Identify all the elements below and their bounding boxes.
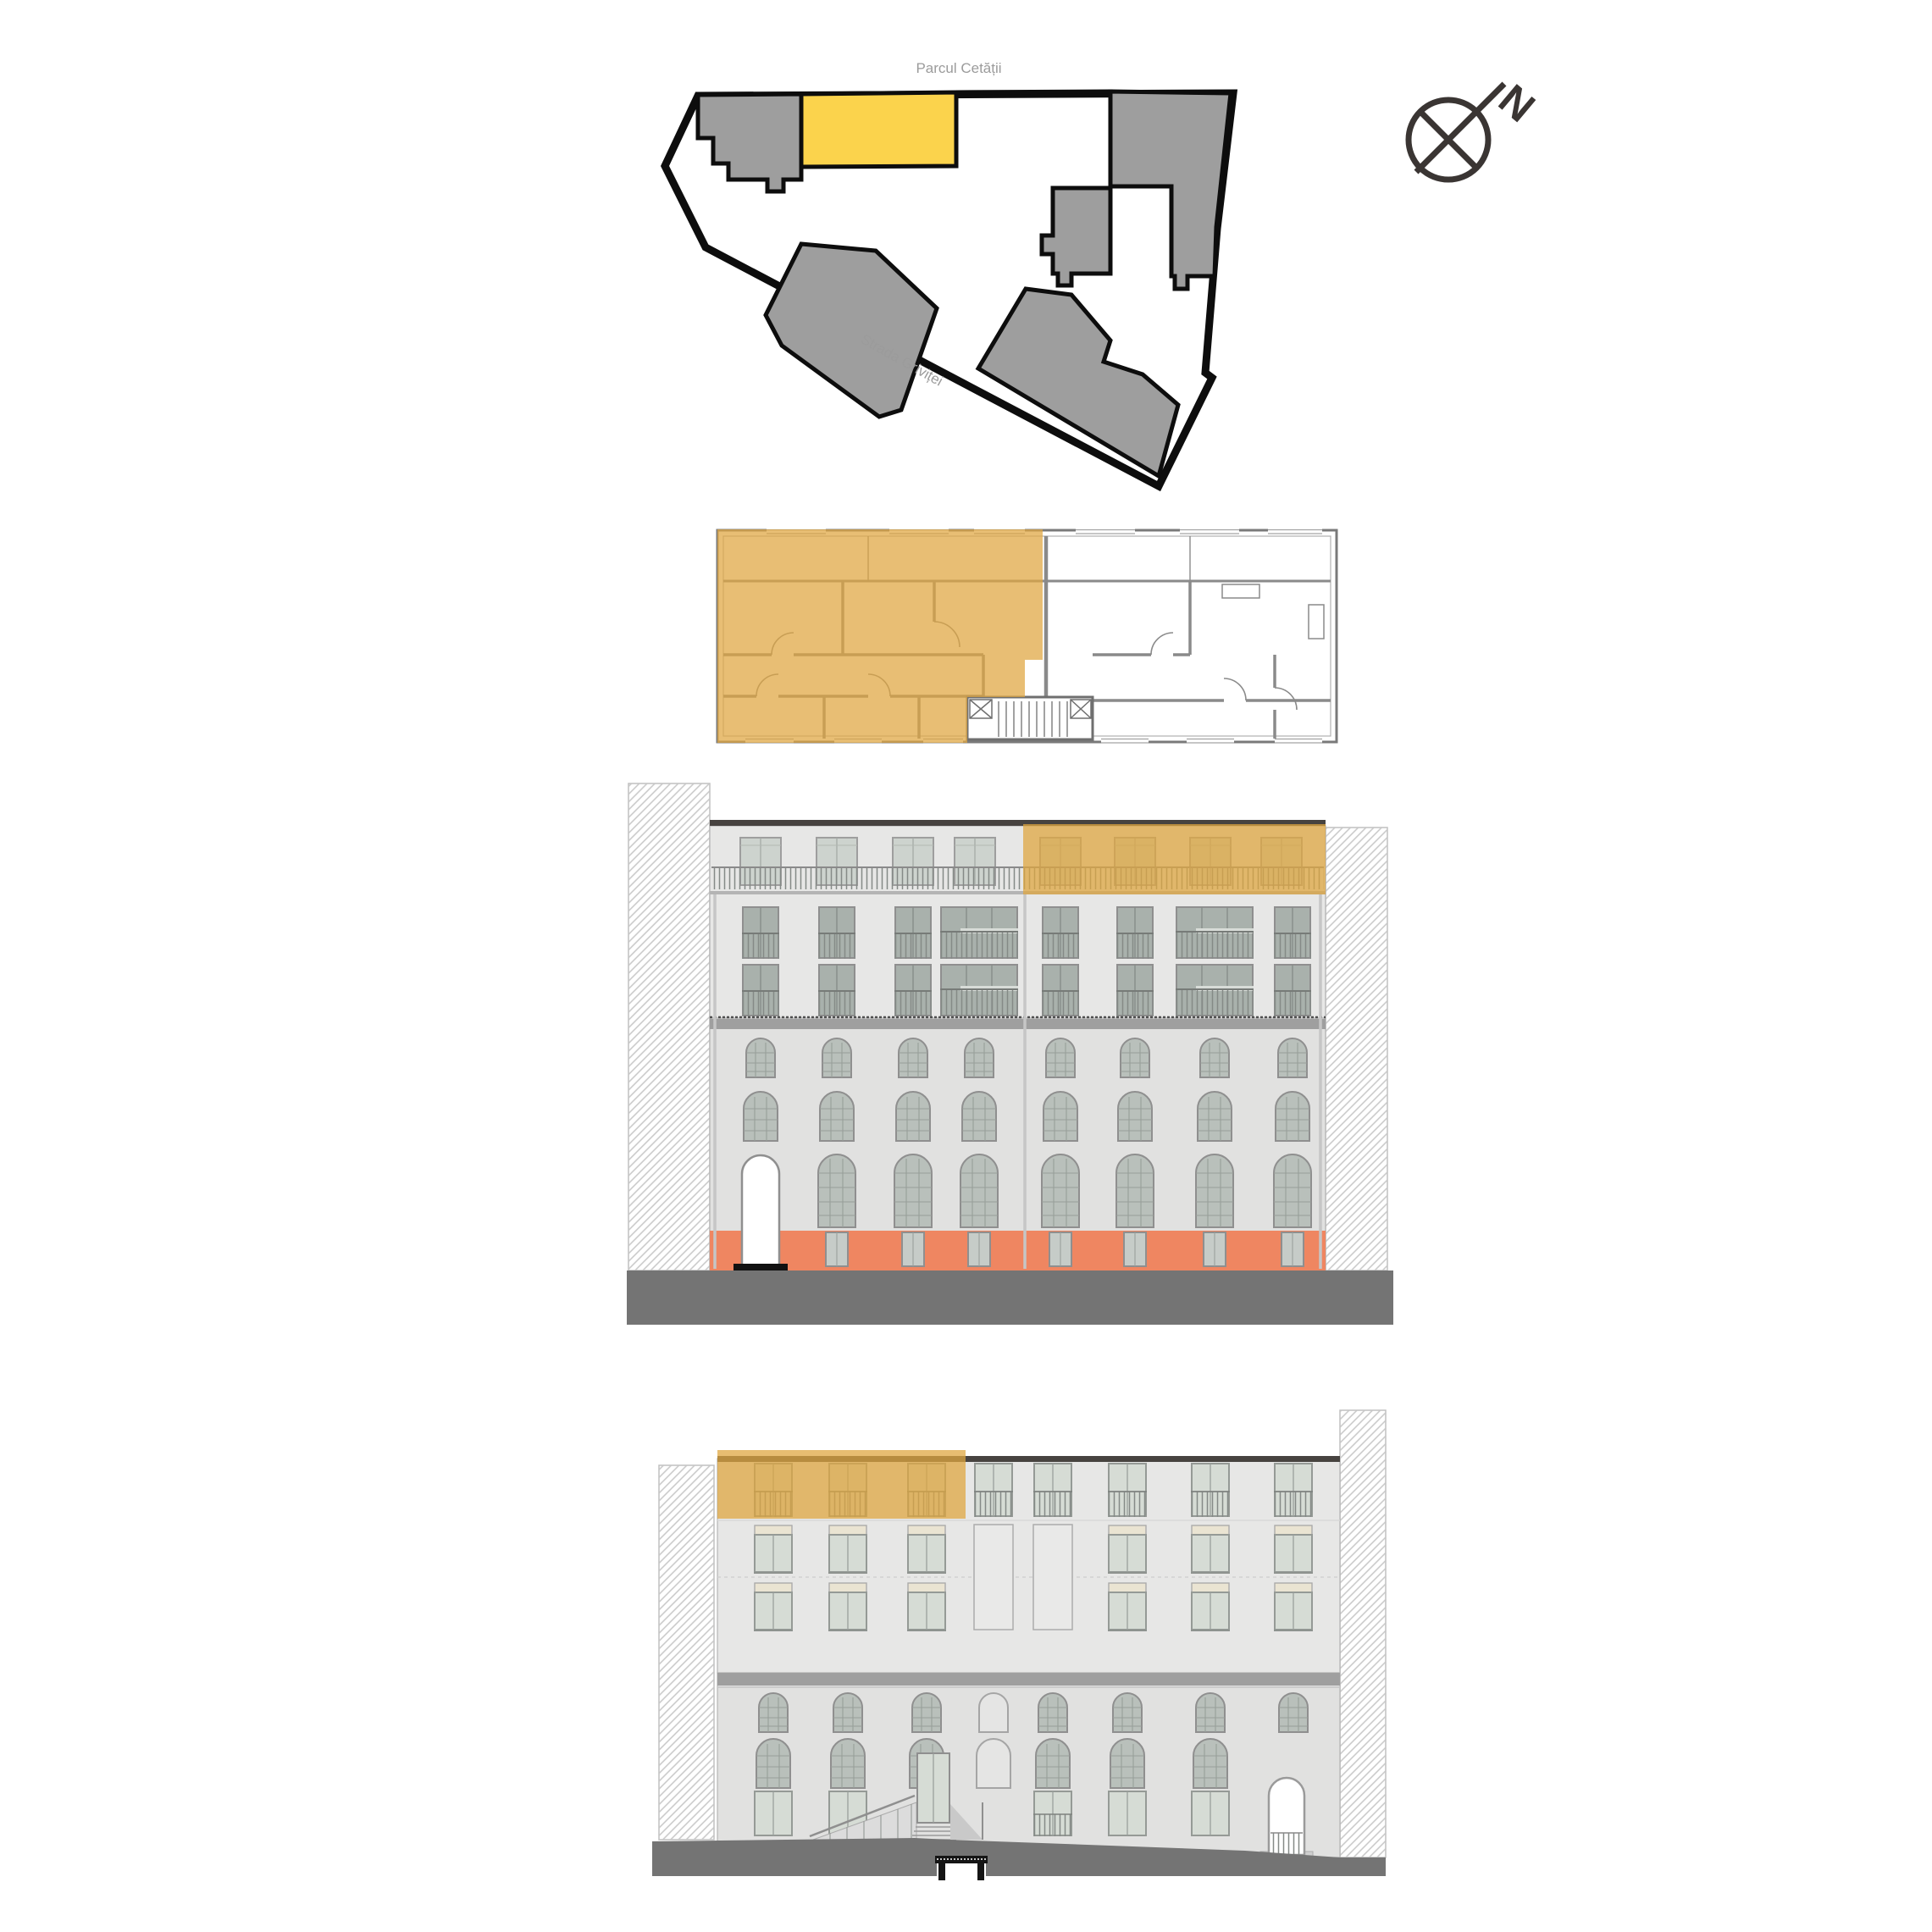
- elevation-rear-figure: [652, 1398, 1398, 1931]
- entry-door-arched: [733, 1155, 788, 1283]
- site-plan-svg: Parcul Cetății Strada Griviței: [652, 49, 1241, 498]
- architectural-drawing-sheet: Parcul Cetății Strada Griviței N: [0, 0, 1932, 1932]
- elevation-front-svg: [627, 779, 1393, 1330]
- building-gray-north-middle-lower: [1042, 188, 1110, 285]
- cornice-band: [710, 1017, 1326, 1029]
- elevation-front-figure: [627, 779, 1393, 1330]
- floor-plan-svg: [716, 527, 1338, 747]
- north-arrow: N: [1379, 47, 1557, 212]
- terrain-strip: [710, 1231, 1326, 1270]
- ground-mass: [627, 1270, 1393, 1325]
- facade-lower: [717, 1673, 1340, 1857]
- elevation-front-overlay[interactable]: [1023, 824, 1326, 894]
- north-label: N: [1490, 75, 1544, 131]
- building-highlighted-site[interactable]: [801, 92, 956, 167]
- elevation-rear-overlay[interactable]: [717, 1450, 966, 1519]
- neighbor-hatch-left: [659, 1465, 714, 1840]
- park-label: Parcul Cetății: [916, 60, 1001, 76]
- neighbor-hatch-left: [628, 783, 710, 1270]
- bench: [935, 1856, 988, 1880]
- floor-plan-figure: [716, 527, 1338, 747]
- neighbor-hatch-right: [1340, 1410, 1386, 1857]
- elevation-rear-svg: [652, 1398, 1398, 1931]
- compass-glyph: [1409, 84, 1504, 180]
- plan-stair-core: [967, 697, 1093, 739]
- cornice-band: [717, 1673, 1340, 1687]
- neighbor-hatch-right: [1326, 828, 1387, 1270]
- site-plan-figure: Parcul Cetății Strada Griviței: [652, 49, 1241, 498]
- north-arrow-icon: N: [1379, 47, 1557, 212]
